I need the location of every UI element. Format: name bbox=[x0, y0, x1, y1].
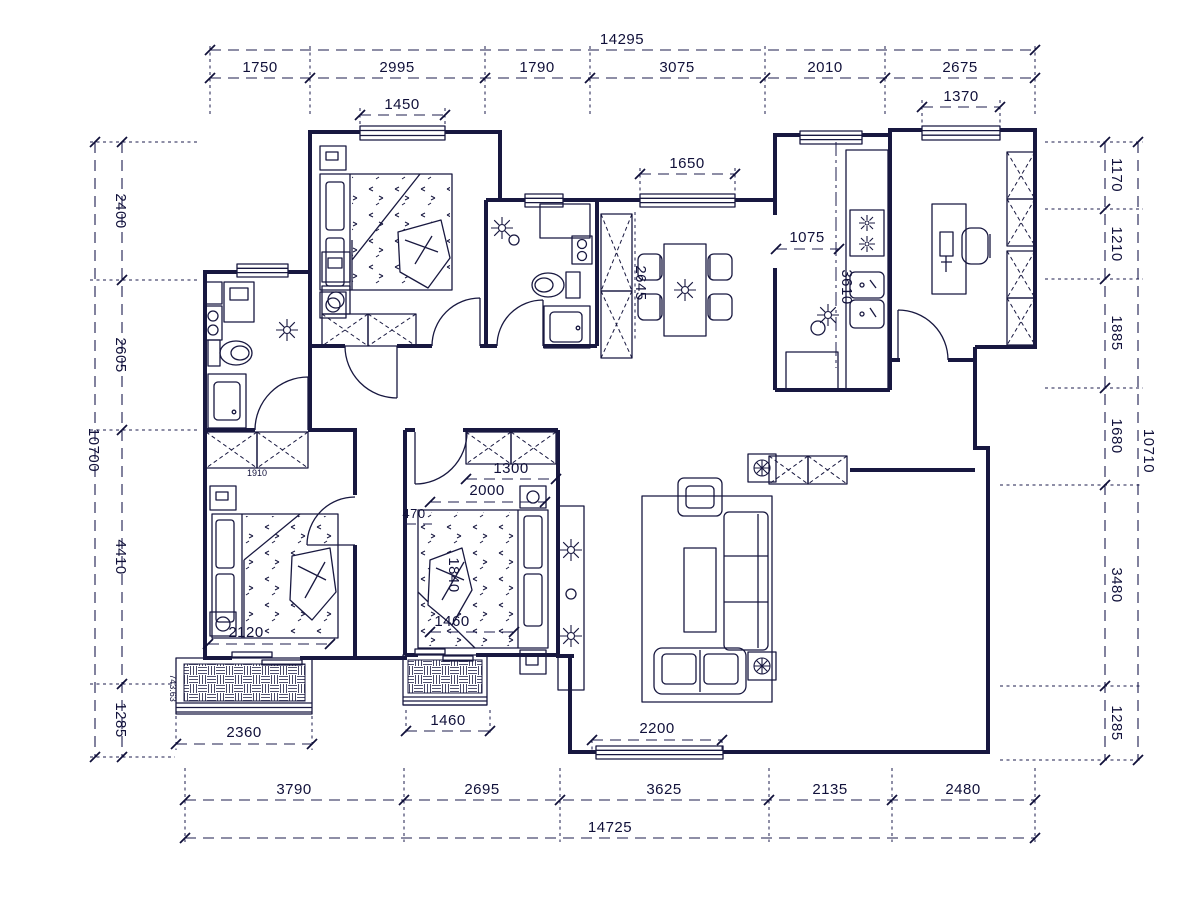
dining-table bbox=[664, 244, 706, 336]
dim-bed2-width: 2000 bbox=[469, 482, 504, 499]
dim-wardrobe-width: 1300 bbox=[493, 460, 528, 477]
study-door bbox=[898, 310, 948, 360]
fridge bbox=[786, 352, 838, 390]
bookshelf bbox=[1007, 152, 1035, 345]
dim-balcony2-width: 1460 bbox=[430, 712, 465, 729]
dim-chain-right: 1170 1210 1885 1680 3480 1285 10710 bbox=[1000, 137, 1157, 765]
dim-left-1: 2400 bbox=[112, 193, 129, 228]
dim-top-4: 3075 bbox=[659, 59, 694, 76]
dim-bottom-5: 2480 bbox=[945, 781, 980, 798]
bedroom1-door bbox=[432, 298, 480, 346]
dim-kitchen-length: 3610 bbox=[838, 269, 855, 304]
kitchen-fixtures bbox=[786, 142, 888, 390]
dim-right-2: 1210 bbox=[1108, 226, 1125, 261]
dim-right-4: 1680 bbox=[1108, 418, 1125, 453]
vanity-sink bbox=[208, 374, 246, 428]
lamp-icon bbox=[754, 460, 770, 476]
bedroom1-window bbox=[360, 126, 445, 140]
wardrobe bbox=[322, 314, 416, 346]
pillow bbox=[524, 516, 542, 568]
centerpiece-plant-icon bbox=[674, 279, 696, 301]
hall-cabinet bbox=[601, 214, 632, 358]
nightstand bbox=[320, 146, 346, 170]
closet-row bbox=[206, 432, 308, 468]
dim-right-6: 1285 bbox=[1108, 705, 1125, 740]
plant-icon bbox=[491, 217, 513, 239]
dim-kitchen-width: 1075 bbox=[789, 229, 824, 246]
dim-top-5: 2010 bbox=[807, 59, 842, 76]
kitchen-window bbox=[800, 131, 862, 144]
dim-left-total: 10700 bbox=[85, 428, 102, 472]
pillow bbox=[216, 574, 234, 622]
pillow bbox=[326, 182, 344, 230]
sofa bbox=[724, 512, 768, 650]
pillow bbox=[524, 574, 542, 626]
dim-bed2-length: 1840 bbox=[445, 557, 462, 592]
dim-right-5: 3480 bbox=[1108, 567, 1125, 602]
dining-window bbox=[640, 194, 735, 207]
dim-left-4: 1285 bbox=[112, 702, 129, 737]
dim-hall-window: 1650 bbox=[669, 155, 704, 172]
balcony-2 bbox=[403, 655, 487, 705]
desk bbox=[932, 204, 966, 294]
nightstand bbox=[210, 486, 236, 510]
pillow bbox=[326, 238, 344, 286]
bathroom2-fixtures bbox=[491, 204, 592, 348]
lamp-icon bbox=[754, 658, 770, 674]
dim-chain-left: 2400 2605 4410 1285 10700 bbox=[85, 137, 200, 762]
balcony-1 bbox=[176, 658, 312, 714]
sink bbox=[544, 306, 590, 348]
dim-top-total: 14295 bbox=[600, 31, 644, 48]
monitor bbox=[940, 232, 953, 256]
hall-door bbox=[345, 346, 397, 398]
dim-study-window: 1370 bbox=[943, 88, 978, 105]
dim-bed2-gap: 470 bbox=[402, 506, 425, 521]
dim-chain-bottom: 3790 2695 3625 2135 2480 14725 bbox=[180, 768, 1040, 843]
coffee-table bbox=[684, 548, 716, 632]
dining-furniture bbox=[638, 244, 732, 336]
bath2-door bbox=[497, 300, 543, 346]
dim-top-2: 2995 bbox=[379, 59, 414, 76]
dim-top-6: 2675 bbox=[942, 59, 977, 76]
floorplan-drawing: 14295 1750 2995 1790 3075 2010 2675 3790… bbox=[0, 0, 1200, 900]
toilet bbox=[208, 340, 252, 366]
tv-cabinet bbox=[769, 456, 847, 484]
dim-bottom-2: 2695 bbox=[464, 781, 499, 798]
dim-right-1: 1170 bbox=[1108, 158, 1125, 192]
study-window bbox=[922, 126, 1000, 140]
bath1-window bbox=[237, 264, 288, 277]
loveseat bbox=[654, 648, 746, 694]
dim-bottom-1: 3790 bbox=[276, 781, 311, 798]
bath2-window bbox=[525, 194, 563, 207]
stove bbox=[850, 210, 884, 256]
dim-level-note: 743.63 bbox=[168, 674, 178, 702]
bath1-door bbox=[255, 377, 308, 430]
dim-left-2: 2605 bbox=[112, 337, 129, 372]
bedroom1-furniture bbox=[320, 146, 452, 346]
dim-bottom-4: 2135 bbox=[812, 781, 847, 798]
dim-bottom-total: 14725 bbox=[588, 819, 632, 836]
dim-top-3: 1790 bbox=[519, 59, 554, 76]
dim-living-window: 2200 bbox=[639, 720, 674, 737]
dim-closet-width: 1910 bbox=[247, 468, 267, 478]
study-furniture bbox=[932, 152, 1035, 345]
dim-bottom-3: 3625 bbox=[646, 781, 681, 798]
plant-icon bbox=[276, 319, 298, 341]
dim-right-total: 10710 bbox=[1140, 429, 1157, 473]
counter bbox=[540, 204, 590, 238]
dim-right-3: 1885 bbox=[1108, 315, 1125, 350]
dim-chain-top: 14295 1750 2995 1790 3075 2010 2675 bbox=[205, 31, 1040, 114]
dim-bed3-width: 2120 bbox=[228, 624, 263, 641]
chair bbox=[708, 294, 732, 320]
dim-bedroom1-window: 1450 bbox=[384, 96, 419, 113]
chair bbox=[708, 254, 732, 280]
bedroom2-door bbox=[415, 432, 467, 484]
dim-bed2-foot: 1460 bbox=[434, 613, 469, 630]
pillow bbox=[216, 520, 234, 568]
dim-top-1: 1750 bbox=[242, 59, 277, 76]
toilet bbox=[532, 272, 580, 298]
floorplan-canvas: 14295 1750 2995 1790 3075 2010 2675 3790… bbox=[0, 0, 1200, 900]
dim-balcony1-width: 2360 bbox=[226, 724, 261, 741]
plant-icon bbox=[817, 304, 839, 326]
living-window bbox=[596, 746, 723, 759]
dim-left-3: 4410 bbox=[112, 539, 129, 574]
bedroom3-furniture bbox=[210, 486, 338, 638]
bedroom2-furniture bbox=[418, 432, 556, 674]
armchair bbox=[678, 478, 722, 516]
living-furniture bbox=[558, 454, 847, 702]
doors bbox=[232, 298, 948, 665]
interior-dimensions: 1450 1650 1370 1075 3610 2645 1300 2000 … bbox=[168, 88, 1005, 752]
dim-dining-length: 2645 bbox=[632, 265, 649, 300]
windows bbox=[237, 126, 1000, 759]
